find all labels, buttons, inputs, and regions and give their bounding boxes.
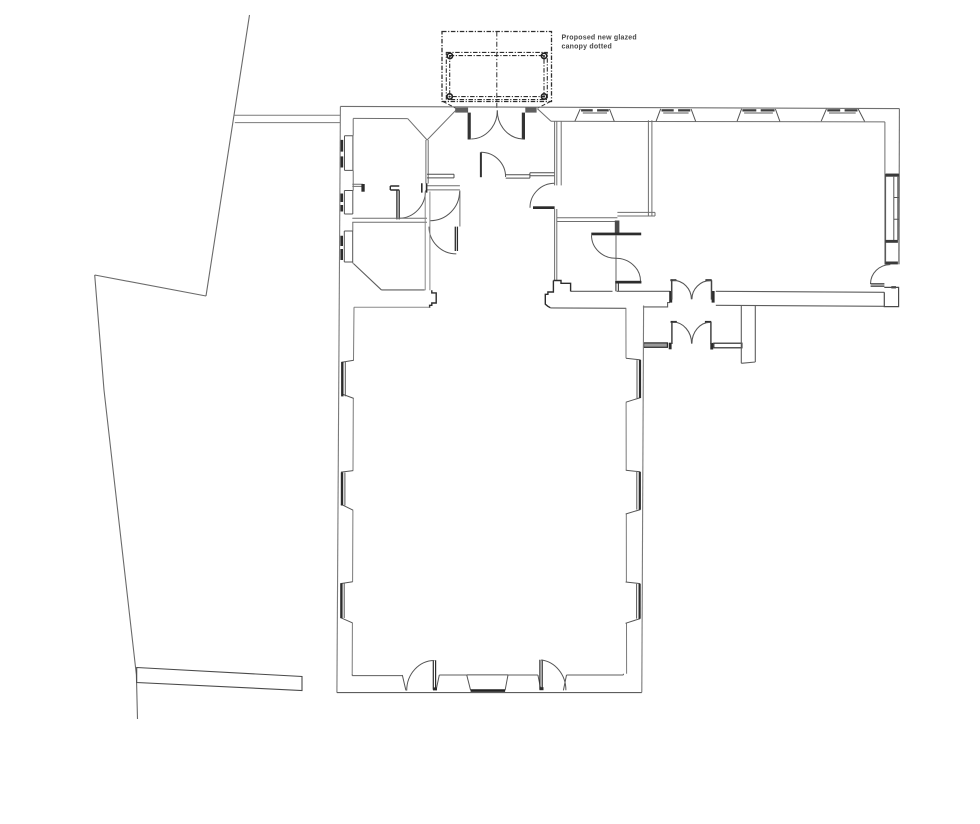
svg-text:canopy dotted: canopy dotted (562, 43, 612, 50)
svg-text:Proposed new glazed: Proposed new glazed (562, 35, 637, 42)
